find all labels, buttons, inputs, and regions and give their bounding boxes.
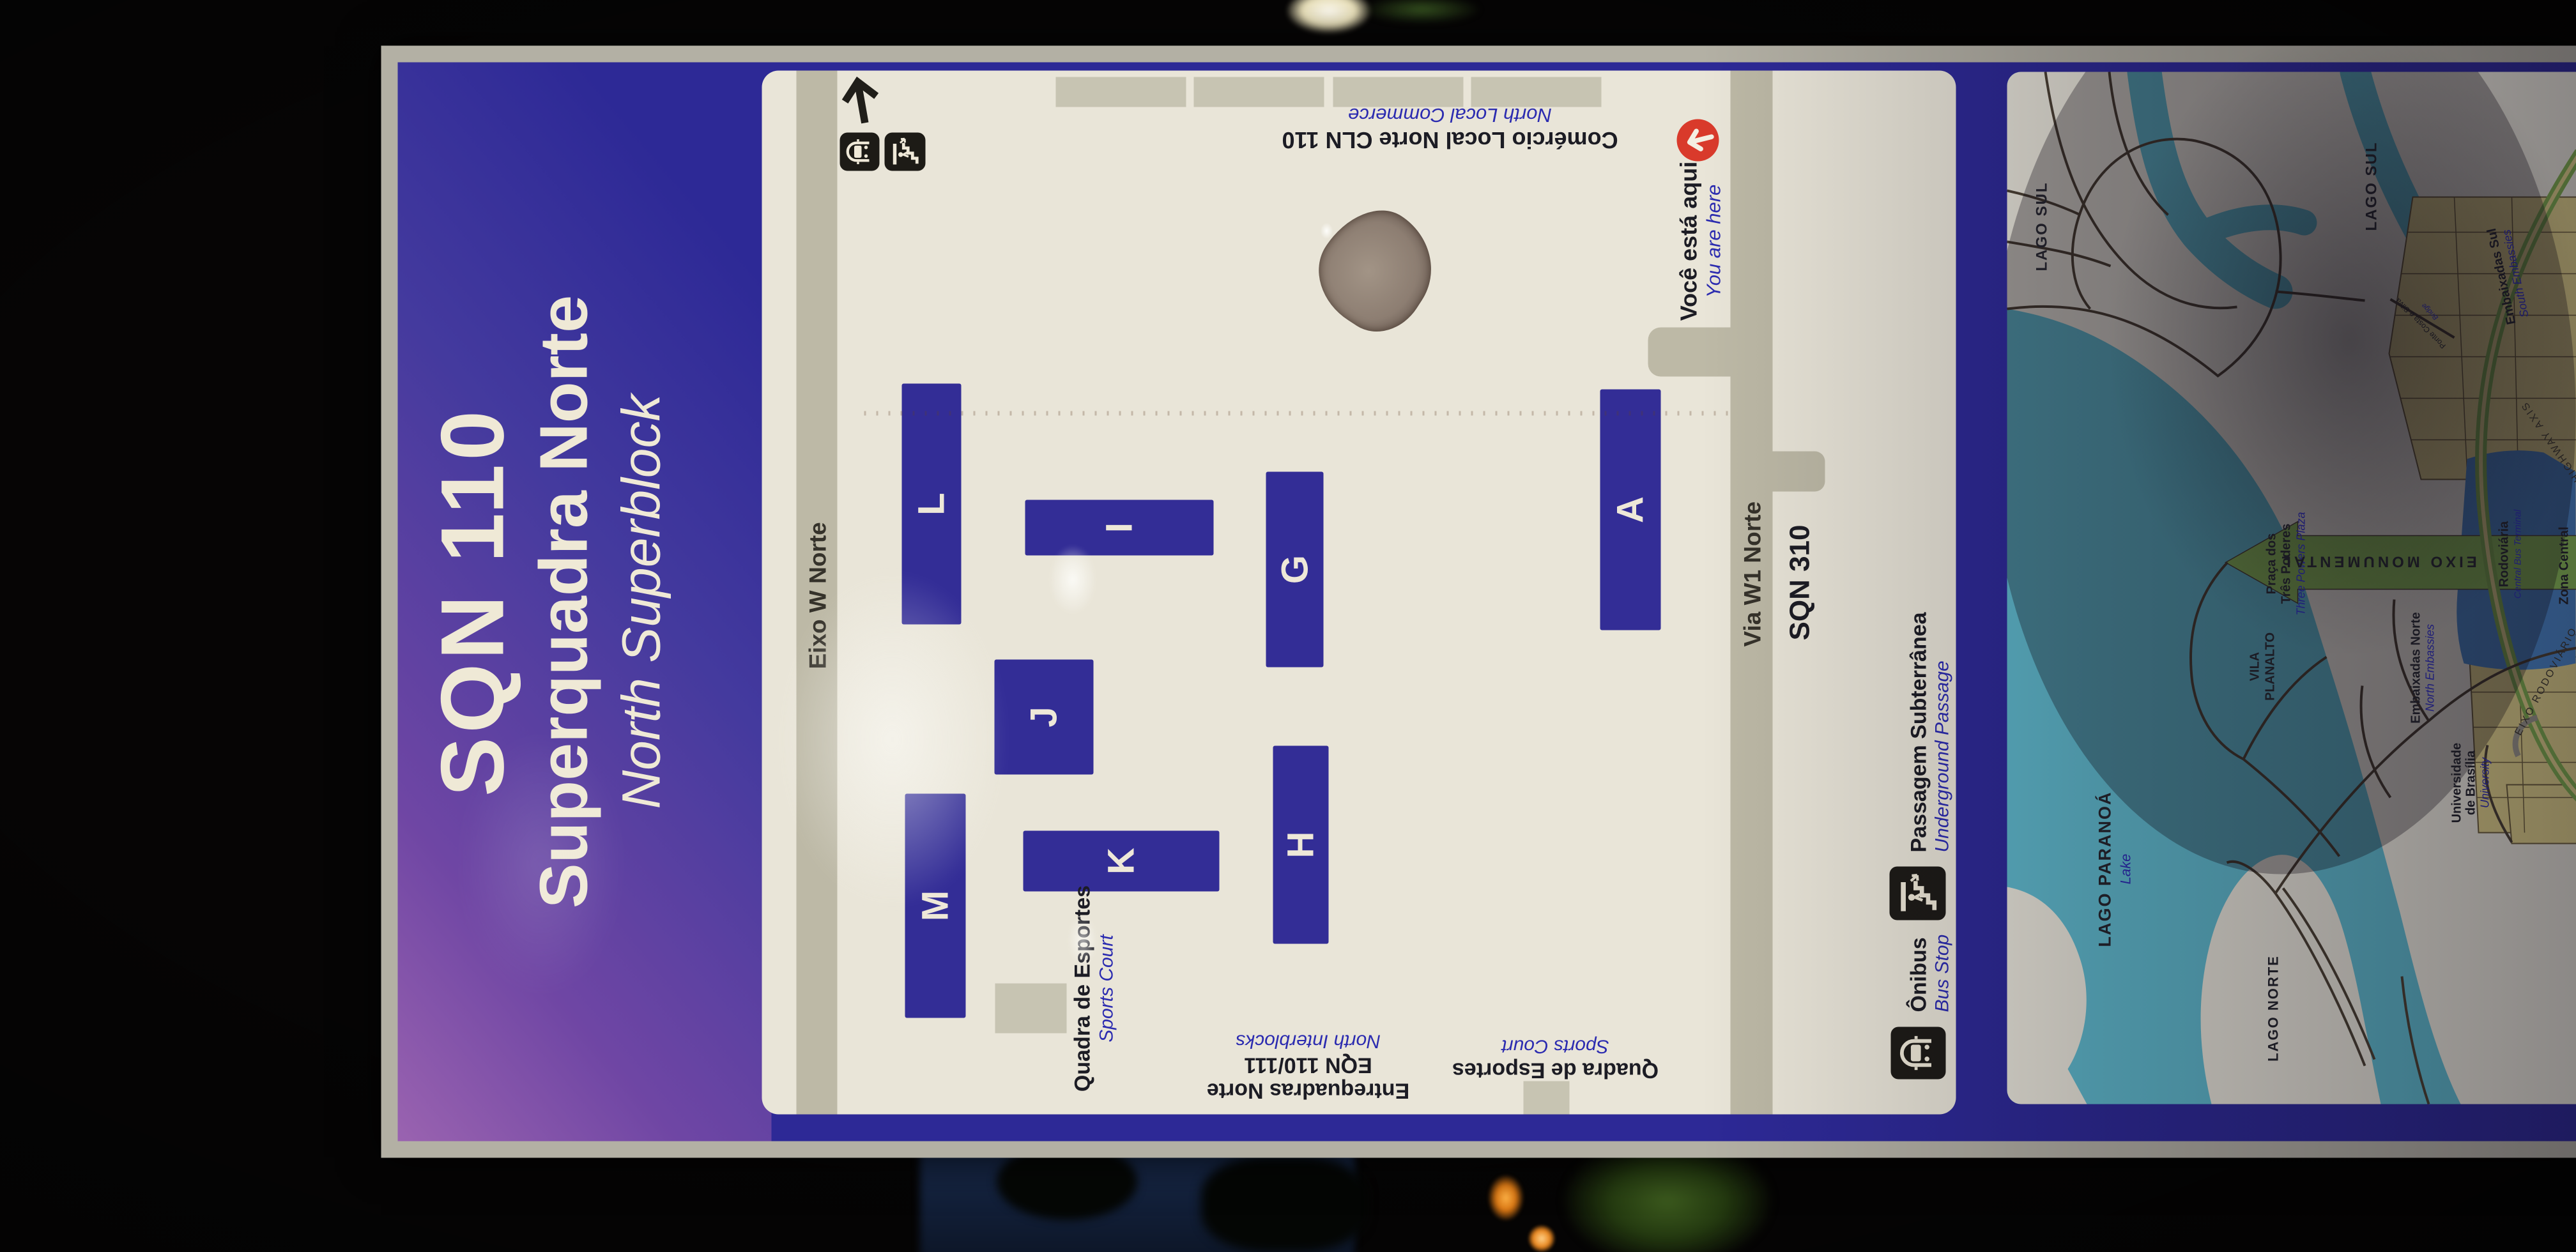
legend-underground-label: Passagem Subterrânea Underground Passage bbox=[1907, 612, 1954, 852]
commerce-building-tile bbox=[1056, 77, 1186, 107]
block-J: J bbox=[995, 660, 1094, 775]
underground-passage-icon bbox=[885, 133, 926, 171]
distant-warm-light bbox=[1528, 1225, 1555, 1252]
north-arrow-icon bbox=[831, 66, 891, 133]
label-lago-sul: LAGO SUL bbox=[2034, 182, 2051, 271]
label-lago-norte: LAGO NORTE bbox=[2265, 955, 2281, 1062]
label-zona-central: Zona Central bbox=[2557, 526, 2572, 604]
legend-underground-en: Underground Passage bbox=[1932, 612, 1954, 852]
commerce-label: Comércio Local Norte CLN 110 North Local… bbox=[1282, 103, 1618, 153]
you-are-here-en: You are here bbox=[1703, 149, 1726, 334]
sports-court-tile bbox=[1524, 1081, 1570, 1115]
tree-silhouette bbox=[1201, 1156, 1367, 1252]
label-universidade-1: Universidade bbox=[2450, 743, 2464, 823]
sign-board: SQN 110 Superquadra Norte North Superblo… bbox=[381, 46, 2576, 1158]
legend-underground-pt: Passagem Subterrânea bbox=[1907, 612, 1932, 852]
sports-court-2-label-en: Sports Court bbox=[1452, 1035, 1659, 1057]
label-lago-paranoa-en: Lake bbox=[2118, 854, 2134, 885]
sports-court-label: Quadra de Esportes Sports Court bbox=[1070, 874, 1119, 1104]
commerce-label-pt: Comércio Local Norte CLN 110 bbox=[1282, 126, 1618, 153]
bus-icon bbox=[1891, 1027, 1946, 1080]
glare-spot bbox=[1049, 545, 1097, 615]
sports-court-2-label: Quadra de Esportes Sports Court bbox=[1452, 1035, 1659, 1083]
access-road-stub bbox=[1773, 452, 1825, 492]
label-universidade-en: University bbox=[2479, 757, 2492, 808]
sports-court-label-pt: Quadra de Esportes bbox=[1070, 874, 1096, 1104]
access-road-entrance bbox=[1648, 328, 1733, 377]
land-lago-norte-peninsula bbox=[2201, 855, 2381, 1104]
legend-bus-en: Bus Stop bbox=[1932, 935, 1954, 1012]
night-photo-scene: SQN 110 Superquadra Norte North Superblo… bbox=[0, 0, 2576, 1252]
block-K: K bbox=[1023, 831, 1220, 892]
commerce-label-en: North Local Commerce bbox=[1282, 103, 1618, 126]
bus-icon bbox=[840, 133, 880, 171]
interblocks-label: Entrequadras Norte EQN 110/111 North Int… bbox=[1207, 1030, 1409, 1104]
interblocks-label-pt: Entrequadras Norte bbox=[1207, 1078, 1409, 1103]
glare-speck bbox=[1321, 223, 1333, 240]
legend-bus-label: Ônibus Bus Stop bbox=[1907, 935, 1954, 1012]
district-unb bbox=[2507, 785, 2576, 844]
block-A: A bbox=[1600, 390, 1661, 630]
sports-court-tile bbox=[995, 984, 1067, 1034]
neighbor-superblock-label: SQN 310 bbox=[1784, 525, 1816, 641]
underground-passage-icon bbox=[1890, 867, 1946, 920]
interblocks-label-code: EQN 110/111 bbox=[1207, 1052, 1409, 1078]
sports-court-2-label-pt: Quadra de Esportes bbox=[1452, 1057, 1659, 1083]
glare-spot bbox=[1068, 915, 1098, 966]
you-are-here-label: Você está aqui You are here bbox=[1676, 149, 1726, 334]
you-are-here-arrow-icon bbox=[1677, 119, 1719, 162]
street-lamp-light bbox=[1287, 0, 1370, 33]
block-H: H bbox=[1273, 746, 1329, 944]
flash-glare bbox=[778, 570, 1008, 909]
road-via-w1-label: Via W1 Norte bbox=[1740, 501, 1767, 647]
legend-bus-pt: Ônibus bbox=[1907, 935, 1932, 1012]
superblock-sign-rotated: SQN 110 Superquadra Norte North Superblo… bbox=[381, 46, 2576, 1158]
sports-court-label-en: Sports Court bbox=[1096, 874, 1118, 1104]
label-lago-paranoa: LAGO PARANOÁ bbox=[2095, 791, 2115, 947]
sign-header: SQN 110 Superquadra Norte North Superblo… bbox=[398, 63, 772, 1141]
label-universidade-2: de Brasília bbox=[2464, 750, 2478, 815]
you-are-here-pt: Você está aqui bbox=[1676, 149, 1703, 334]
interblocks-label-en: North Interblocks bbox=[1207, 1030, 1409, 1052]
distant-warm-light bbox=[1489, 1175, 1523, 1220]
header-sheen bbox=[458, 730, 624, 998]
land-north-shore bbox=[2007, 887, 2087, 1104]
label-vila-planalto-1: VILA bbox=[2248, 652, 2262, 682]
panel-seam-dirt bbox=[854, 411, 1729, 416]
superblock-title-en: North Superblock bbox=[606, 63, 676, 1141]
block-G: G bbox=[1266, 472, 1324, 668]
block-I: I bbox=[1025, 500, 1214, 556]
lit-foliage bbox=[1361, 0, 1482, 24]
